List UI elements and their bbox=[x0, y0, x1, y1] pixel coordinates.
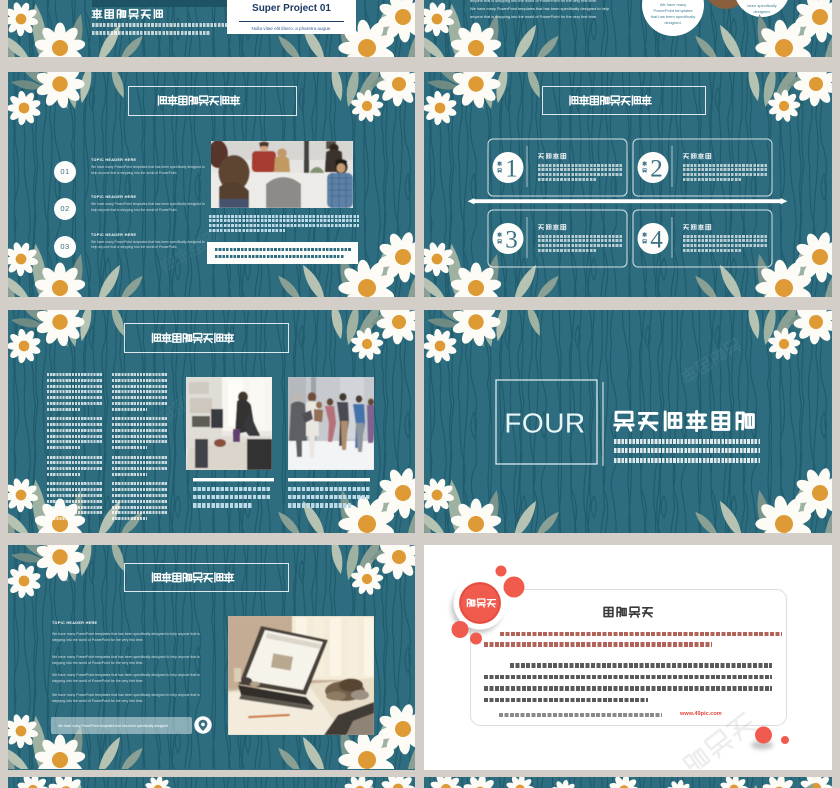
svg-text:FOUR: FOUR bbox=[504, 408, 585, 439]
